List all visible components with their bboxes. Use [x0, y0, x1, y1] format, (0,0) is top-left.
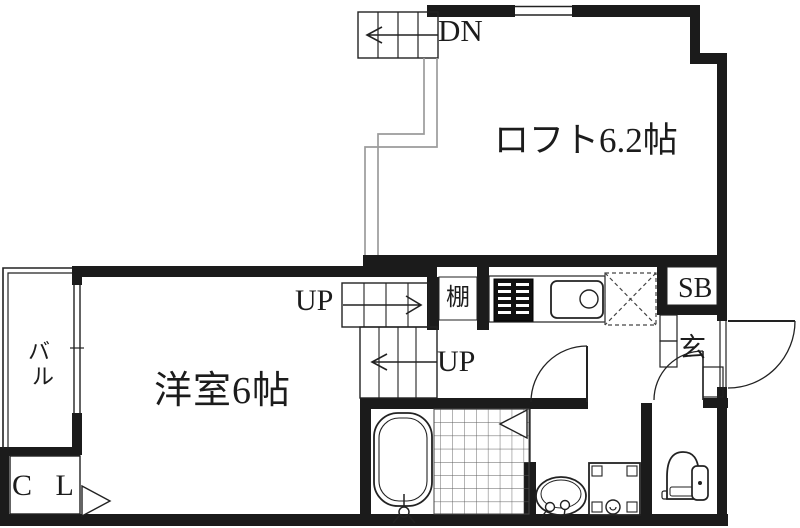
shelf-label: 棚 — [446, 286, 470, 310]
void-line-outer — [365, 58, 437, 255]
stairs-up-label-upper: UP — [295, 286, 333, 316]
upper-up-flight — [342, 283, 429, 327]
balcony-label-char1: バ — [28, 341, 50, 363]
stairs-up-label-lower: UP — [437, 347, 475, 377]
washing-machine-pan — [589, 463, 640, 515]
floor-plan-svg — [0, 0, 800, 528]
floor-plan: ロフト6.2帖 DN UP UP 棚 SB 玄 バ ル 洋室6帖 C L — [0, 0, 800, 528]
stove-icon — [494, 279, 533, 321]
toilet-flush-button — [698, 481, 702, 485]
dn-arrow — [367, 27, 438, 43]
washroom-door-swing-arc — [531, 346, 587, 402]
refrigerator-space — [605, 273, 656, 325]
stairs-down-label: DN — [438, 15, 483, 46]
wall-loft-bottom — [363, 255, 727, 267]
shoe-box-label: SB — [678, 275, 712, 303]
wall-bath-west — [360, 398, 371, 516]
wall-right-upper — [717, 53, 727, 321]
loft-room-label: ロフト6.2帖 — [494, 123, 678, 158]
washer-pan-box — [589, 463, 640, 515]
wall-shelf-east — [477, 267, 489, 330]
wall-sb-bottom — [665, 305, 722, 315]
stairs — [342, 12, 438, 398]
wall-washroom-toilet-divider — [641, 403, 652, 516]
wall-balcony-bottom — [0, 447, 80, 456]
entrance-label: 玄 — [679, 335, 706, 362]
walls — [0, 5, 728, 526]
kitchen — [439, 273, 656, 325]
wall-loft-top-right — [572, 5, 700, 17]
entrance-step-2 — [660, 341, 677, 367]
wall-bath-top — [360, 398, 588, 409]
washbasin-outer — [536, 477, 586, 515]
toilet-room — [662, 452, 708, 500]
balcony-label-char2: ル — [32, 366, 54, 388]
washroom — [536, 463, 640, 518]
closet-fold-door — [82, 486, 110, 516]
front-door — [720, 321, 795, 388]
front-door-swing-arc — [728, 321, 795, 388]
wall-balcony-post — [72, 266, 82, 285]
bathtub-icon — [374, 413, 432, 523]
stairwell-void-lines — [365, 58, 437, 255]
entrance-step-1 — [660, 315, 677, 341]
room-west-window — [70, 285, 84, 413]
western-room-label: 洋室6帖 — [154, 372, 291, 410]
wall-room-top — [72, 266, 437, 277]
washroom-door — [531, 346, 587, 402]
void-line-inner — [378, 58, 424, 255]
loft-window — [515, 7, 572, 16]
windows — [70, 7, 572, 414]
bathroom — [374, 409, 530, 523]
upper-flight-arrow — [343, 296, 421, 314]
closet-label: C L — [12, 471, 82, 501]
lower-up-flight — [360, 327, 437, 398]
washbasin-icon — [536, 477, 586, 518]
wall-under-entrance — [703, 398, 728, 408]
lower-flight-arrow — [372, 354, 437, 370]
dn-staircase — [358, 12, 438, 58]
